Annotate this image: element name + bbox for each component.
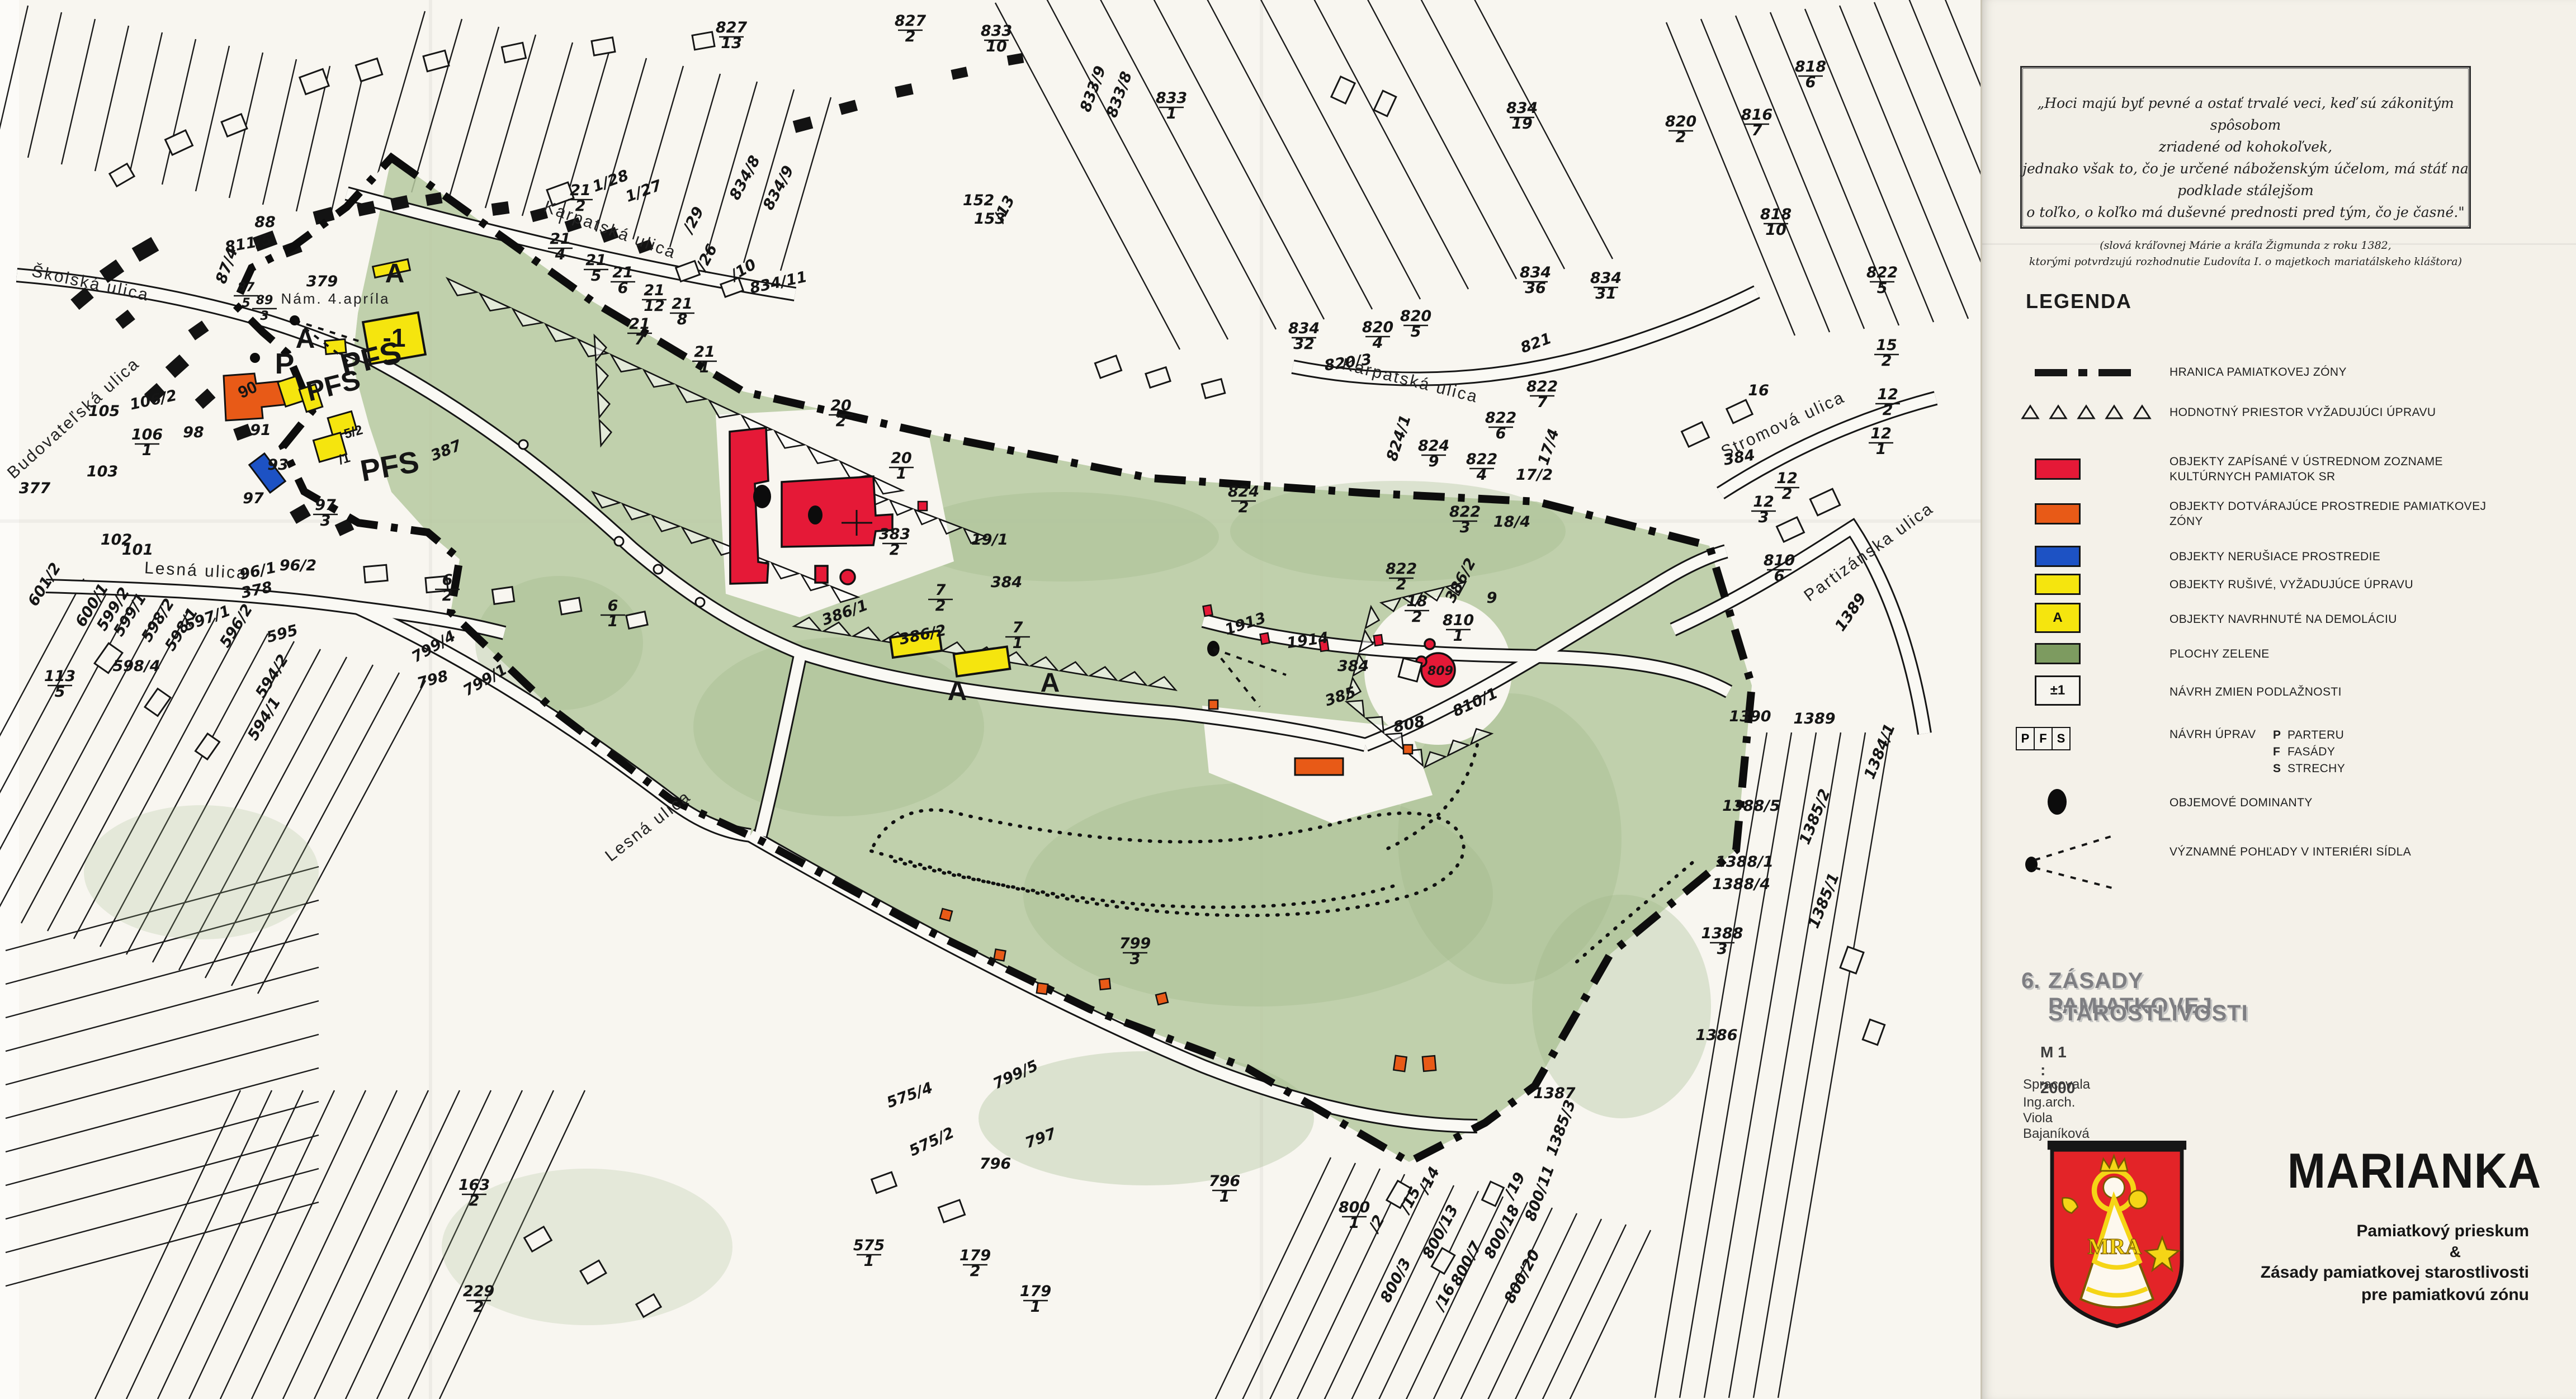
white-square-structure	[1398, 658, 1422, 682]
parcel-label: 19/1	[971, 531, 1008, 549]
house-outline	[559, 598, 582, 615]
parcel-label: 105	[88, 403, 120, 420]
parcel-label: 62	[442, 571, 453, 604]
house-black	[491, 201, 510, 216]
pfs-key: PPARTERU FFASÁDY SSTRECHY	[2273, 727, 2576, 777]
orange-structure	[1295, 758, 1343, 775]
parcel-label: 17/2	[1516, 466, 1553, 484]
parcel-label: 16	[1748, 382, 1769, 399]
parcel-label: 96/2	[280, 557, 316, 574]
quote-attribution: (slová kráľovnej Márie a kráľa Žigmunda …	[2022, 238, 2469, 254]
historic-quote-box: „Hoci majú byť pevné a ostať trvalé veci…	[2020, 66, 2471, 229]
house-outline	[364, 565, 387, 582]
parcel-label: 102	[101, 531, 132, 549]
parcel-label: 1386	[1695, 1027, 1737, 1044]
chapter-number: 6.	[2021, 968, 2040, 994]
parcel-label: 379	[306, 273, 338, 290]
triangles-symbol	[2016, 404, 2156, 423]
parcel-label: 93	[267, 456, 289, 474]
parcel-label: 9	[1487, 589, 1497, 607]
boundary-line-symbol	[2035, 367, 2135, 380]
red-swatch	[2035, 459, 2081, 480]
parcel-label: 1389	[1793, 710, 1835, 727]
quote-line: o toľko, o koľko má duševné prednosti pr…	[2022, 201, 2469, 223]
sheet-margin	[0, 0, 19, 1399]
quote-attribution: ktorými potvrdzujú rozhodnutie Ľudovíta …	[2022, 254, 2469, 270]
parcel-label: 377	[19, 480, 51, 497]
chapter-title: STAROSTLIVOSTI	[2048, 1001, 2248, 1026]
child-head	[2129, 1190, 2147, 1208]
house-outline	[492, 587, 514, 604]
parcel-label: 1388/5	[1722, 797, 1780, 815]
parcel-label: 103	[87, 463, 118, 480]
green-swatch	[2035, 643, 2081, 664]
house-outline	[502, 42, 526, 62]
parcel-label: 1388/1	[1715, 853, 1774, 871]
annotation-label: A	[948, 677, 967, 706]
author-label: Spracovala	[2023, 1077, 2090, 1093]
parcel-label: 152	[963, 192, 994, 209]
svg-text:MRA: MRA	[2088, 1233, 2142, 1259]
cadastral-map: Školská ulicaBudovateľská ulicaKarpatská…	[0, 0, 1981, 1399]
green-patch	[84, 805, 319, 939]
parcel-label: 2112	[644, 282, 665, 315]
parcel-label: 71	[1013, 619, 1023, 652]
legend-title: LEGENDA	[2026, 290, 2132, 313]
scanned-plan-sheet: Školská ulicaBudovateľská ulicaKarpatská…	[0, 0, 2576, 1399]
view-cone-symbol	[2021, 832, 2128, 896]
quote-line: jednako však to, čo je určené náboženský…	[2022, 158, 2469, 201]
black-ellipse-symbol	[2045, 787, 2069, 819]
parcel-label: 61	[608, 597, 618, 630]
annotation-label: A	[385, 259, 405, 289]
parcel-label: 796	[980, 1155, 1011, 1173]
quote-line: zriadené od kohokoľvek,	[2022, 136, 2469, 158]
house-outline	[592, 37, 615, 55]
parcel-label: 598/4	[112, 658, 160, 675]
parcel-label: 384	[1337, 658, 1369, 675]
parcel-label: 384	[991, 574, 1022, 591]
plusminus-box: ±1	[2035, 675, 2081, 706]
parcel-label: 91	[250, 422, 271, 439]
street-label: Nám. 4.apríla	[281, 290, 390, 307]
parcel-label: 809	[1428, 664, 1453, 678]
parcel-label: 1390	[1729, 708, 1771, 725]
parcel-label: 88	[254, 214, 276, 231]
chapel-round	[840, 570, 855, 584]
parcel-label: 1387	[1533, 1085, 1575, 1102]
legend-panel: „Hoci majú byť pevné a ostať trvalé veci…	[1981, 0, 2576, 1399]
town-name: MARIANKA	[2258, 1143, 2571, 1200]
document-subtitle: Pamiatkový prieskum & Zásady pamiatkovej…	[2251, 1220, 2529, 1306]
marianka-coat-of-arms: MRA	[2041, 1141, 2192, 1331]
annotation-label: A	[1041, 668, 1060, 698]
orange-swatch	[2035, 503, 2081, 524]
author-name: Ing.arch. Viola Bajaníková	[2023, 1095, 2090, 1142]
chapel-small	[815, 566, 828, 583]
parcel-label: 72	[935, 582, 946, 615]
pfs-boxes-symbol: P F S	[2016, 727, 2069, 750]
quote-line: „Hoci majú byť pevné a ostať trvalé veci…	[2022, 92, 2469, 136]
annotation-label: A	[296, 324, 315, 354]
parcel-label: 98	[183, 424, 204, 441]
parcel-label: 1388/4	[1712, 876, 1770, 893]
house-outline	[626, 612, 647, 629]
yellow-a-swatch: A	[2035, 603, 2081, 633]
yellow-swatch	[2035, 574, 2081, 595]
blue-swatch	[2035, 546, 2081, 567]
annotation-label: P	[275, 348, 295, 380]
parcel-label: 18/4	[1493, 513, 1530, 531]
parcel-label: 97	[243, 490, 264, 507]
annotation-label: -1	[383, 323, 406, 352]
house-outline	[692, 32, 715, 50]
